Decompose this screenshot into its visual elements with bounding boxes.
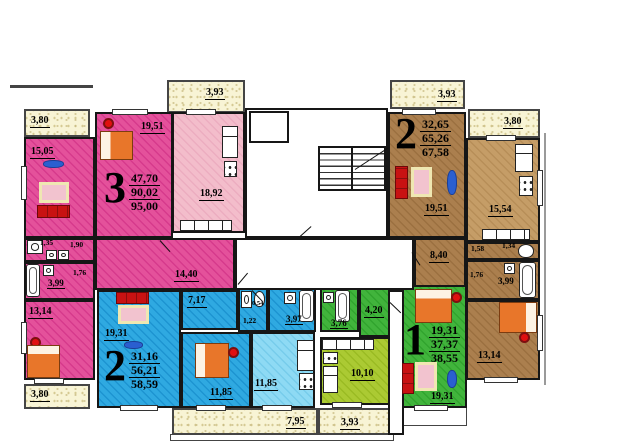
room-label: 7,17 — [187, 296, 207, 308]
balcony-label: 3,80 — [30, 116, 50, 128]
apartment-area-living: 31,16 — [129, 350, 160, 364]
balcony-label: 3,93 — [437, 90, 457, 102]
sofa-icon — [37, 205, 70, 218]
stairs — [318, 146, 386, 191]
window — [34, 378, 64, 384]
stove-icon — [299, 373, 314, 390]
apartment-number: 1 — [404, 322, 426, 358]
window — [537, 170, 543, 206]
sofa-icon — [116, 292, 149, 304]
room-label: 0,54 — [252, 301, 263, 308]
bathtub-icon — [519, 262, 536, 298]
room-label: 15,54 — [488, 205, 513, 217]
apartment-tag-pink: 3 47,70 90,02 95,00 — [104, 170, 160, 213]
rug-icon — [447, 170, 457, 195]
apartment-area-total: 95,00 — [129, 200, 160, 213]
room-label: 1,22 — [243, 317, 256, 325]
washing-machine-icon — [504, 263, 515, 274]
beam-line — [10, 85, 93, 88]
apartment-area-total: 67,58 — [420, 146, 451, 159]
room-label: 19,51 — [424, 204, 449, 216]
apartment-number: 2 — [104, 348, 126, 384]
bathtub-icon — [26, 264, 40, 297]
balcony-label: 7,95 — [286, 417, 306, 429]
bed-icon — [195, 343, 229, 378]
washing-machine-icon — [323, 292, 334, 303]
apartment-tag-blue: 2 31,16 56,21 58,59 — [104, 348, 160, 391]
apartment-number: 2 — [395, 116, 417, 152]
room-label: 18,92 — [199, 189, 224, 201]
fridge-icon — [222, 126, 238, 158]
room-label: 11,85 — [254, 379, 278, 391]
floor-plan: 3 47,70 90,02 95,00 2 32,65 65,26 67,58 … — [0, 0, 640, 443]
lamp-icon — [519, 332, 530, 343]
corridor — [235, 238, 414, 290]
balcony-label: 3,80 — [30, 390, 50, 402]
apartment-area-living: 47,70 — [129, 172, 160, 186]
table-icon — [118, 305, 149, 324]
balcony-label: 3,93 — [340, 418, 360, 430]
bed-icon — [499, 302, 537, 333]
room-label: 19,31 — [104, 329, 129, 341]
window — [21, 166, 27, 200]
sink-icon — [241, 291, 252, 308]
bed-icon — [27, 345, 60, 378]
balcony-label: 3,80 — [503, 117, 523, 129]
apartment-area-living: 32,65 — [420, 118, 451, 132]
room-label: 1,76 — [73, 269, 86, 277]
apartment-tag-brown: 2 32,65 65,26 67,58 — [395, 116, 451, 159]
room-label: 19,51 — [140, 122, 165, 134]
window — [21, 322, 27, 354]
apartment-area-usable: 56,21 — [129, 364, 160, 378]
room-label: 3,99 — [498, 277, 514, 286]
room-label: 4,20 — [364, 306, 384, 318]
sofa-icon — [402, 363, 414, 394]
lamp-icon — [451, 292, 462, 303]
stairs-divider — [351, 148, 353, 189]
apartment-number: 3 — [104, 170, 126, 206]
window — [112, 109, 148, 115]
room-label: 1,35 — [40, 239, 53, 247]
fridge-icon — [323, 366, 338, 393]
room-label: 19,31 — [430, 392, 455, 404]
bed-icon — [100, 131, 133, 160]
washing-machine-icon — [43, 265, 54, 276]
rug-icon — [447, 370, 457, 388]
sofa-icon — [395, 166, 408, 199]
room-label: 1,58 — [471, 245, 484, 253]
washing-machine-icon — [284, 292, 296, 304]
balcony-label: 3,93 — [205, 88, 225, 100]
apartment-area-usable: 65,26 — [420, 132, 451, 146]
lamp-icon — [103, 118, 114, 129]
window — [262, 405, 292, 411]
apartment-tag-green: 1 19,31 37,37 38,55 — [404, 322, 460, 365]
apartment-area-total: 58,59 — [129, 378, 160, 391]
apartment-area-usable: 90,02 — [129, 186, 160, 200]
kitchen-counter-icon — [180, 220, 232, 231]
room-label: 14,40 — [174, 270, 199, 282]
room-label: 3,97 — [285, 315, 303, 325]
sink-icon — [46, 250, 57, 260]
lamp-icon — [228, 347, 239, 358]
rug-icon — [43, 160, 64, 168]
window — [486, 135, 516, 141]
window — [196, 405, 226, 411]
apartment-area-living: 19,31 — [429, 324, 460, 338]
window — [120, 405, 158, 411]
apartment-area-usable: 37,37 — [429, 338, 460, 352]
elevator-shaft — [249, 111, 289, 143]
table-icon — [415, 362, 437, 391]
room-label: 13,14 — [28, 307, 53, 319]
room-label: 1,90 — [70, 241, 83, 249]
building-edge-line — [544, 133, 546, 385]
room-label: 3,76 — [330, 319, 348, 329]
window — [414, 405, 448, 411]
window — [186, 109, 216, 115]
kitchen-counter-icon — [322, 339, 374, 350]
room-label: 1,76 — [470, 271, 483, 279]
sink-icon — [58, 250, 69, 260]
stove-icon — [224, 161, 237, 177]
apartment-area-total: 38,55 — [429, 352, 460, 365]
window — [332, 402, 362, 408]
fridge-icon — [515, 144, 533, 172]
toilet-icon — [518, 244, 534, 258]
table-icon — [39, 182, 69, 203]
room-label: 13,14 — [477, 351, 502, 363]
room-label: 3,99 — [47, 279, 65, 289]
table-icon — [411, 167, 432, 197]
stove-icon — [519, 176, 533, 196]
room-label: 8,40 — [429, 251, 449, 263]
room-label: 10,10 — [350, 369, 375, 381]
room-label: 1,34 — [502, 242, 515, 250]
kitchen-counter-icon — [482, 229, 530, 240]
window — [537, 315, 543, 351]
stove-icon — [323, 352, 338, 364]
room-label: 15,05 — [30, 147, 55, 159]
room-label: 11,85 — [209, 388, 233, 400]
stairs-break-line — [354, 147, 388, 170]
porch-outline — [170, 434, 394, 441]
fridge-icon — [297, 340, 314, 371]
window — [484, 377, 518, 383]
room-brown-hall — [414, 238, 466, 287]
